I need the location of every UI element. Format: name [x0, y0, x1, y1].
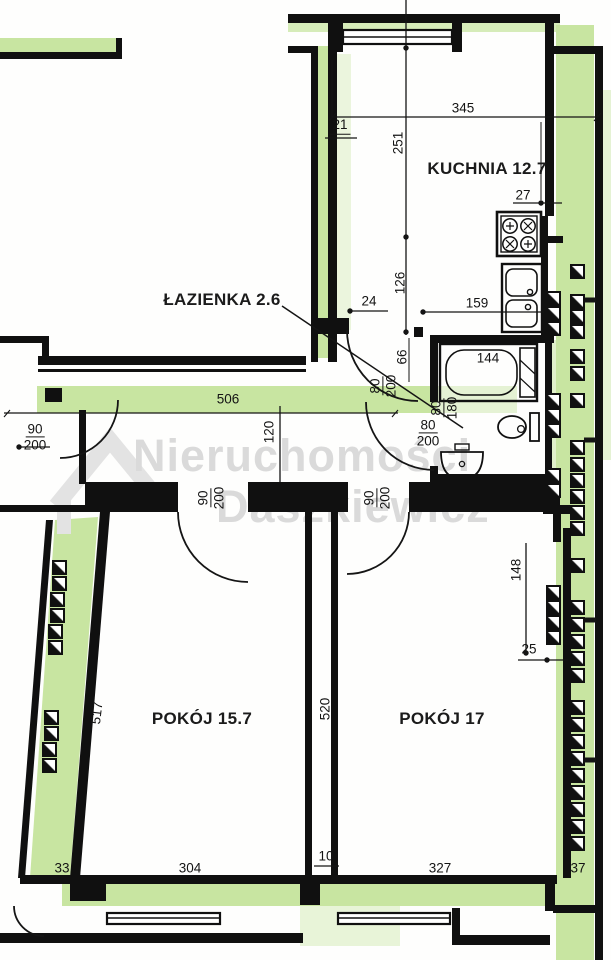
dim-room1-width: 304	[179, 861, 202, 875]
vent-hatch-square	[570, 309, 585, 324]
vent-hatch-square	[570, 600, 585, 615]
room-label-kitchen: KUCHNIA 12.7	[427, 159, 546, 179]
dim-kitchen-width: 345	[452, 101, 475, 115]
vent-hatch-square	[570, 324, 585, 339]
vent-hatch-square	[570, 734, 585, 749]
vent-hatch-square	[570, 768, 585, 783]
dim-159: 159	[466, 296, 489, 310]
dim-120: 120	[262, 421, 276, 444]
vent-hatch-square	[546, 585, 561, 600]
dim-27: 27	[515, 188, 530, 202]
vent-hatch-square	[570, 521, 585, 536]
vent-hatch-square	[570, 393, 585, 408]
vent-hatch-square	[570, 802, 585, 817]
vent-hatch-layer	[0, 0, 611, 960]
vent-hatch-square	[570, 440, 585, 455]
vent-hatch-square	[570, 505, 585, 520]
room-label-room2: POKÓJ 17	[399, 709, 485, 729]
vent-hatch-square	[570, 751, 585, 766]
vent-hatch-square	[44, 710, 59, 725]
vent-hatch-square	[570, 457, 585, 472]
dim-21: 21	[329, 118, 350, 135]
vent-hatch-square	[546, 321, 561, 336]
dim-room1-door: 90 200	[195, 487, 226, 510]
vent-hatch-square	[570, 785, 585, 800]
dim-33: 33	[54, 861, 69, 875]
vent-hatch-square	[570, 366, 585, 381]
dim-kitchen-door: 80 200	[367, 375, 398, 398]
vent-hatch-square	[570, 294, 585, 309]
dim-room2-width: 327	[429, 861, 452, 875]
floor-plan: Nieruchomości Daszkiewicz	[0, 0, 611, 960]
dim-10: 10	[318, 849, 333, 863]
vent-hatch-square	[546, 630, 561, 645]
vent-hatch-square	[546, 423, 561, 438]
vent-hatch-square	[570, 668, 585, 683]
vent-hatch-square	[570, 819, 585, 834]
vent-hatch-square	[546, 483, 561, 498]
vent-hatch-square	[570, 349, 585, 364]
dim-bath-jamb: 80 180	[428, 397, 459, 420]
vent-hatch-square	[546, 306, 561, 321]
vent-hatch-square	[570, 717, 585, 732]
vent-hatch-square	[52, 560, 67, 575]
vent-hatch-square	[50, 592, 65, 607]
dim-25: 25	[521, 642, 536, 656]
dim-148: 148	[509, 559, 523, 582]
vent-hatch-square	[546, 408, 561, 423]
vent-hatch-square	[546, 468, 561, 483]
vent-hatch-square	[570, 264, 585, 279]
vent-hatch-square	[570, 473, 585, 488]
dim-room2-door: 90 200	[361, 487, 392, 510]
vent-hatch-square	[546, 393, 561, 408]
vent-hatch-square	[44, 726, 59, 741]
vent-hatch-square	[570, 558, 585, 573]
vent-hatch-square	[42, 758, 57, 773]
dim-room1-height: 517	[89, 701, 105, 725]
vent-hatch-square	[570, 836, 585, 851]
dim-bathtub: 144	[477, 351, 500, 365]
dim-room2-height: 520	[318, 698, 332, 721]
dim-entrance-door: 90 200	[24, 421, 47, 452]
vent-hatch-square	[570, 634, 585, 649]
vent-hatch-square	[48, 640, 63, 655]
dim-kitchen-height: 251	[391, 132, 405, 155]
vent-hatch-square	[50, 608, 65, 623]
room-label-bathroom: ŁAZIENKA 2.6	[163, 290, 280, 310]
dim-66: 66	[395, 349, 409, 364]
dim-126: 126	[393, 272, 407, 295]
room-label-room1: POKÓJ 15.7	[152, 709, 252, 729]
vent-hatch-square	[570, 651, 585, 666]
vent-hatch-square	[48, 624, 63, 639]
vent-hatch-square	[546, 291, 561, 306]
vent-hatch-square	[570, 700, 585, 715]
dim-37: 37	[570, 861, 585, 875]
vent-hatch-square	[570, 489, 585, 504]
vent-hatch-square	[52, 576, 67, 591]
vent-hatch-square	[546, 600, 561, 615]
vent-hatch-square	[546, 615, 561, 630]
dim-24: 24	[361, 294, 376, 308]
dim-hall-width: 506	[217, 392, 240, 406]
vent-hatch-square	[42, 742, 57, 757]
dim-bathroom-door: 80 200	[417, 417, 440, 448]
vent-hatch-square	[570, 617, 585, 632]
